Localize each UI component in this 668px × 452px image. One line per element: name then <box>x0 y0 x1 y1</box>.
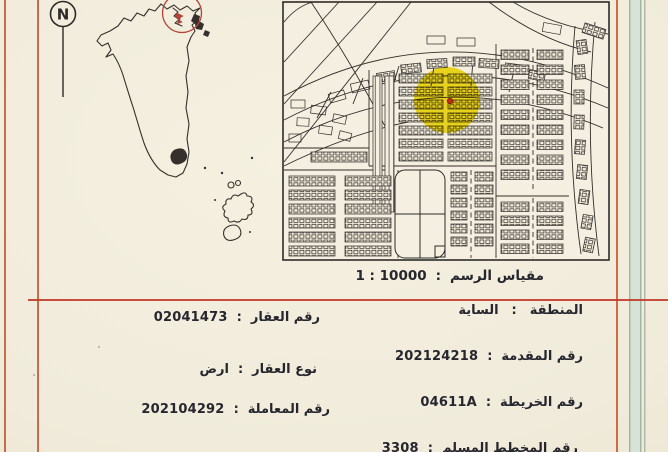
field-property-number-label: رقم العقار <box>251 310 320 325</box>
scan-edge-green-band <box>629 0 647 452</box>
north-compass-icon: N <box>46 0 80 100</box>
bahrain-locator-map <box>95 0 260 250</box>
field-property-type-value: ارض <box>200 362 229 377</box>
red-separator-line <box>28 299 668 301</box>
compass-letter: N <box>57 6 70 24</box>
field-application-number: رقم المقدمة : 202124218 <box>395 349 583 364</box>
scale-colon: : <box>436 268 441 284</box>
map-scale-line: مقياس الرسم : 1 : 10000 <box>355 268 544 284</box>
field-region-value: الساية <box>458 303 498 318</box>
empty-parcel <box>395 170 445 258</box>
field-map-number-value: 04611A <box>420 395 477 410</box>
colon: : <box>486 395 491 410</box>
field-map-number: رقم الخريطة : 04611A <box>420 395 583 410</box>
scan-speck <box>98 346 100 348</box>
field-application-number-value: 202124218 <box>395 349 478 364</box>
field-property-type: نوع العقار : ارض <box>200 362 317 377</box>
field-delivered-plan-number-value: 3308 <box>382 441 419 452</box>
field-property-number: رقم العقار : 02041473 <box>154 310 320 325</box>
colon: : <box>512 303 517 318</box>
cadastral-map <box>281 0 611 264</box>
colon: : <box>234 402 239 417</box>
scanned-land-certificate: N <box>0 0 668 452</box>
colon: : <box>487 349 492 364</box>
margin-line-left-outer <box>4 0 6 452</box>
field-transaction-number-value: 202104292 <box>141 402 224 417</box>
field-region: المنطقة : الساية <box>458 303 583 318</box>
field-delivered-plan-number-label: رقم المخطط المسلم <box>442 441 578 452</box>
scale-value: 1 : 10000 <box>355 268 426 284</box>
site-marker-dot <box>447 98 453 104</box>
field-property-type-label: نوع العقار <box>252 362 317 377</box>
colon: : <box>428 441 433 452</box>
field-map-number-label: رقم الخريطة <box>500 395 583 410</box>
margin-line-right <box>616 0 618 452</box>
colon: : <box>238 362 243 377</box>
field-region-label: المنطقة <box>530 303 583 318</box>
field-application-number-label: رقم المقدمة <box>501 349 583 364</box>
field-delivered-plan-number: رقم المخطط المسلم : 3308 <box>382 441 578 452</box>
scan-speck <box>33 374 35 376</box>
field-property-number-value: 02041473 <box>154 310 228 325</box>
margin-line-left-inner <box>37 0 39 452</box>
site-highlight-circle <box>414 67 480 133</box>
field-transaction-number-label: رقم المعاملة <box>248 402 330 417</box>
scale-label: مقياس الرسم <box>450 268 544 284</box>
field-transaction-number: رقم المعاملة : 202104292 <box>141 402 330 417</box>
colon: : <box>237 310 242 325</box>
